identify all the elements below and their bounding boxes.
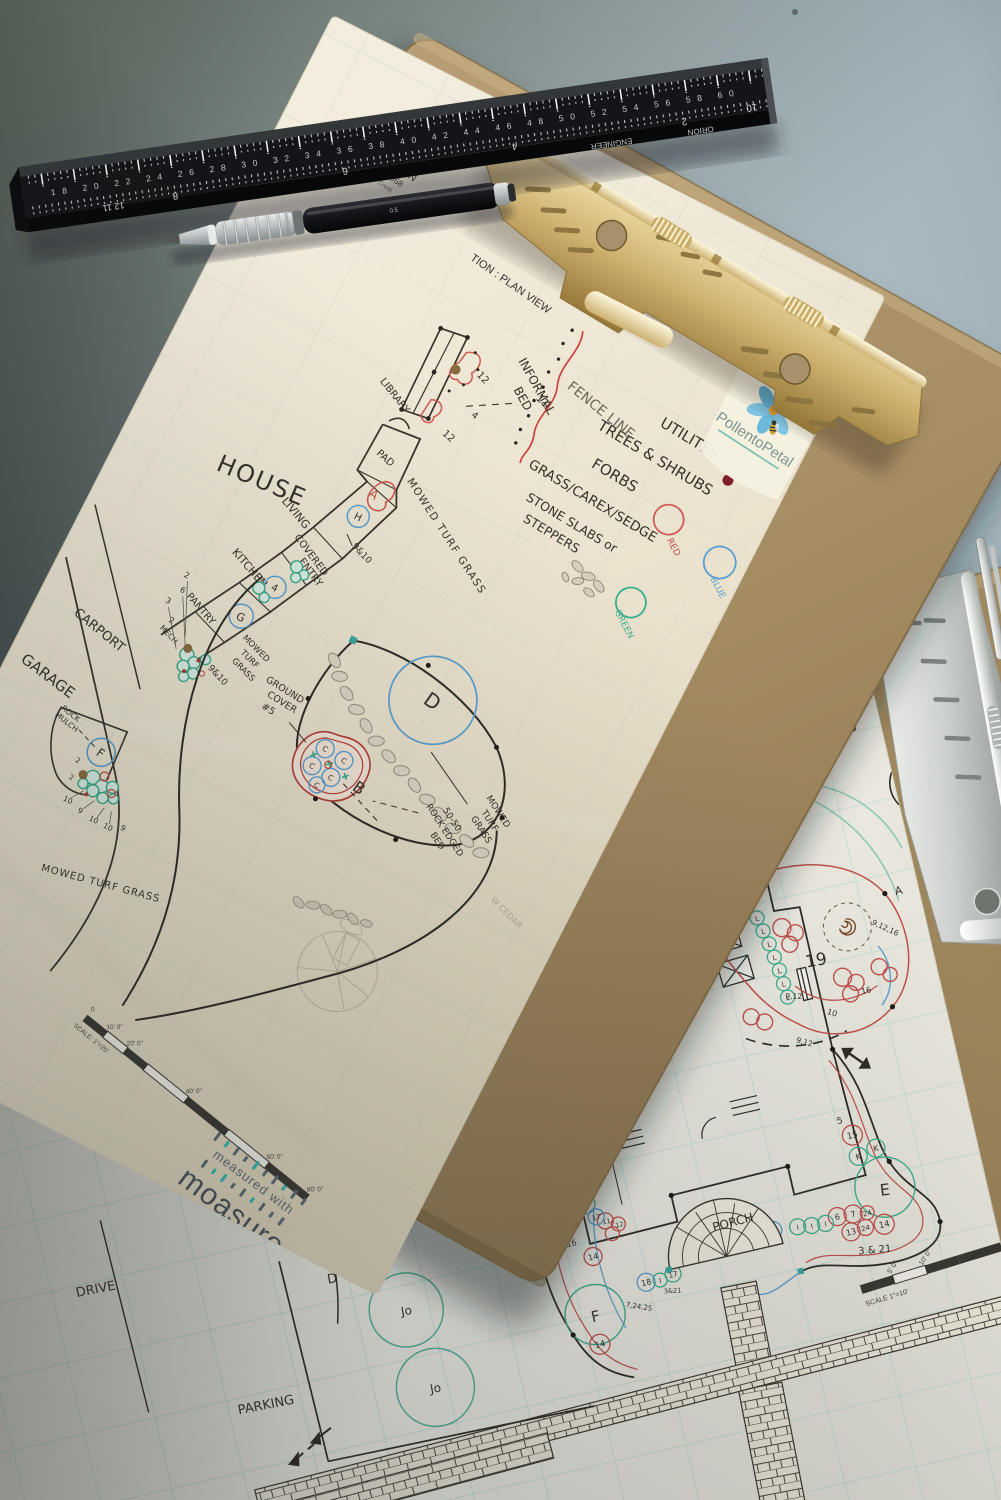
tree-label: Jo [399,1303,413,1319]
plant-note: 9,12 [785,991,802,1001]
plant-note: 3&21 [664,1286,682,1295]
area-label: 19 [804,949,829,972]
scene: PollentoPetal [0,0,1001,1500]
scale-tick: 0 [91,1006,95,1013]
scale-tick: 80' 0" [307,1186,324,1193]
desk-speck [792,9,798,15]
scale-tick: 20' 0" [127,1040,144,1047]
scale-tick: 40' 0" [186,1088,203,1095]
tree-label: Jo [428,1380,442,1396]
photo-landscape-plans: PollentoPetal [0,0,1001,1500]
pencil-print: 0.5 [389,208,399,215]
scale-tick: 60' 0" [267,1153,284,1160]
ruler-unit: 10 [745,101,758,114]
scale-tick: 10' 0" [106,1024,123,1031]
